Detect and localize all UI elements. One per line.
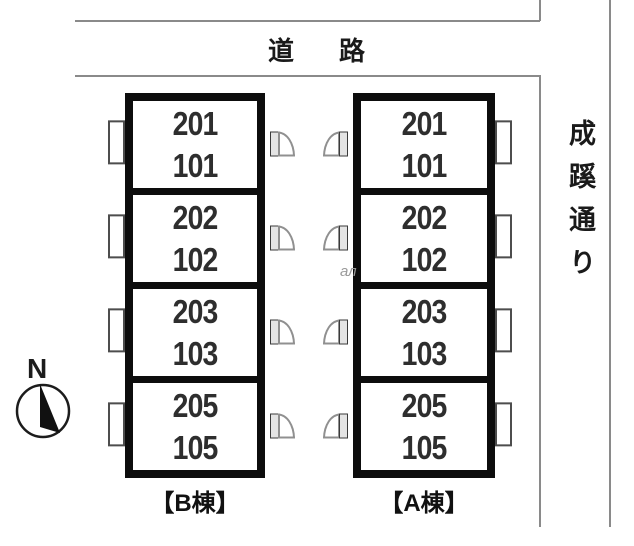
door-swing-arc-icon bbox=[278, 413, 295, 438]
unit-row-a-202-102: 202 102 bbox=[361, 195, 487, 282]
door-icon bbox=[270, 225, 295, 250]
unit-row-b-205-105: 205 105 bbox=[133, 383, 257, 470]
door-icon bbox=[270, 319, 295, 344]
door-icon bbox=[323, 225, 348, 250]
window-icon bbox=[108, 214, 125, 258]
unit-number-upper: 202 bbox=[402, 197, 447, 239]
window-icon bbox=[108, 402, 125, 446]
road-label: 道路 bbox=[268, 31, 410, 68]
unit-number-lower: 102 bbox=[402, 239, 447, 281]
unit-row-a-205-105: 205 105 bbox=[361, 383, 487, 470]
door-swing-arc-icon bbox=[323, 131, 340, 156]
building-b-label: 【B棟】 bbox=[125, 483, 265, 518]
building-a: 201 101 202 102 203 103 205 105 bbox=[353, 93, 495, 478]
street-right-boundary-line bbox=[609, 0, 611, 527]
window-icon bbox=[495, 214, 512, 258]
unit-number-upper: 205 bbox=[402, 385, 447, 427]
unit-row-b-203-103: 203 103 bbox=[133, 289, 257, 376]
window-icon bbox=[108, 308, 125, 352]
unit-number-upper: 203 bbox=[402, 291, 447, 333]
building-a-label: 【A棟】 bbox=[353, 483, 495, 518]
unit-number-upper: 201 bbox=[173, 103, 218, 145]
door-swing-arc-icon bbox=[278, 225, 295, 250]
unit-row-b-201-101: 201 101 bbox=[133, 101, 257, 188]
unit-number-lower: 101 bbox=[173, 145, 218, 187]
unit-number-lower: 102 bbox=[173, 239, 218, 281]
street-left-boundary-upper-line bbox=[539, 0, 541, 21]
unit-number-lower: 103 bbox=[402, 333, 447, 375]
unit-number-upper: 202 bbox=[173, 197, 218, 239]
unit-number-upper: 201 bbox=[402, 103, 447, 145]
door-panel-icon bbox=[339, 319, 348, 344]
street-left-boundary-line bbox=[539, 75, 541, 527]
door-panel-icon bbox=[339, 131, 348, 156]
door-swing-arc-icon bbox=[278, 131, 295, 156]
compass-north-label: N bbox=[27, 353, 47, 385]
watermark-text: ал bbox=[340, 263, 357, 280]
unit-number-lower: 103 bbox=[173, 333, 218, 375]
door-panel-icon bbox=[339, 413, 348, 438]
unit-number-upper: 205 bbox=[173, 385, 218, 427]
door-icon bbox=[323, 319, 348, 344]
unit-number-upper: 203 bbox=[173, 291, 218, 333]
door-icon bbox=[323, 131, 348, 156]
road-top-boundary-line bbox=[75, 20, 540, 22]
window-icon bbox=[108, 120, 125, 164]
door-icon bbox=[270, 131, 295, 156]
door-swing-arc-icon bbox=[323, 319, 340, 344]
door-panel-icon bbox=[339, 225, 348, 250]
building-b: 201 101 202 102 203 103 205 105 bbox=[125, 93, 265, 478]
road-bottom-boundary-line bbox=[75, 75, 541, 77]
window-icon bbox=[495, 120, 512, 164]
unit-number-lower: 101 bbox=[402, 145, 447, 187]
unit-number-lower: 105 bbox=[173, 427, 218, 469]
door-swing-arc-icon bbox=[323, 225, 340, 250]
door-icon bbox=[270, 413, 295, 438]
street-name-label: 成蹊通り bbox=[561, 119, 600, 291]
north-compass-icon bbox=[14, 382, 74, 442]
door-swing-arc-icon bbox=[323, 413, 340, 438]
site-plan: 道路 成蹊通り 201 101 202 102 203 103 205 105 bbox=[0, 0, 634, 546]
window-icon bbox=[495, 402, 512, 446]
door-swing-arc-icon bbox=[278, 319, 295, 344]
unit-number-lower: 105 bbox=[402, 427, 447, 469]
door-icon bbox=[323, 413, 348, 438]
window-icon bbox=[495, 308, 512, 352]
unit-row-a-203-103: 203 103 bbox=[361, 289, 487, 376]
unit-row-b-202-102: 202 102 bbox=[133, 195, 257, 282]
unit-row-a-201-101: 201 101 bbox=[361, 101, 487, 188]
